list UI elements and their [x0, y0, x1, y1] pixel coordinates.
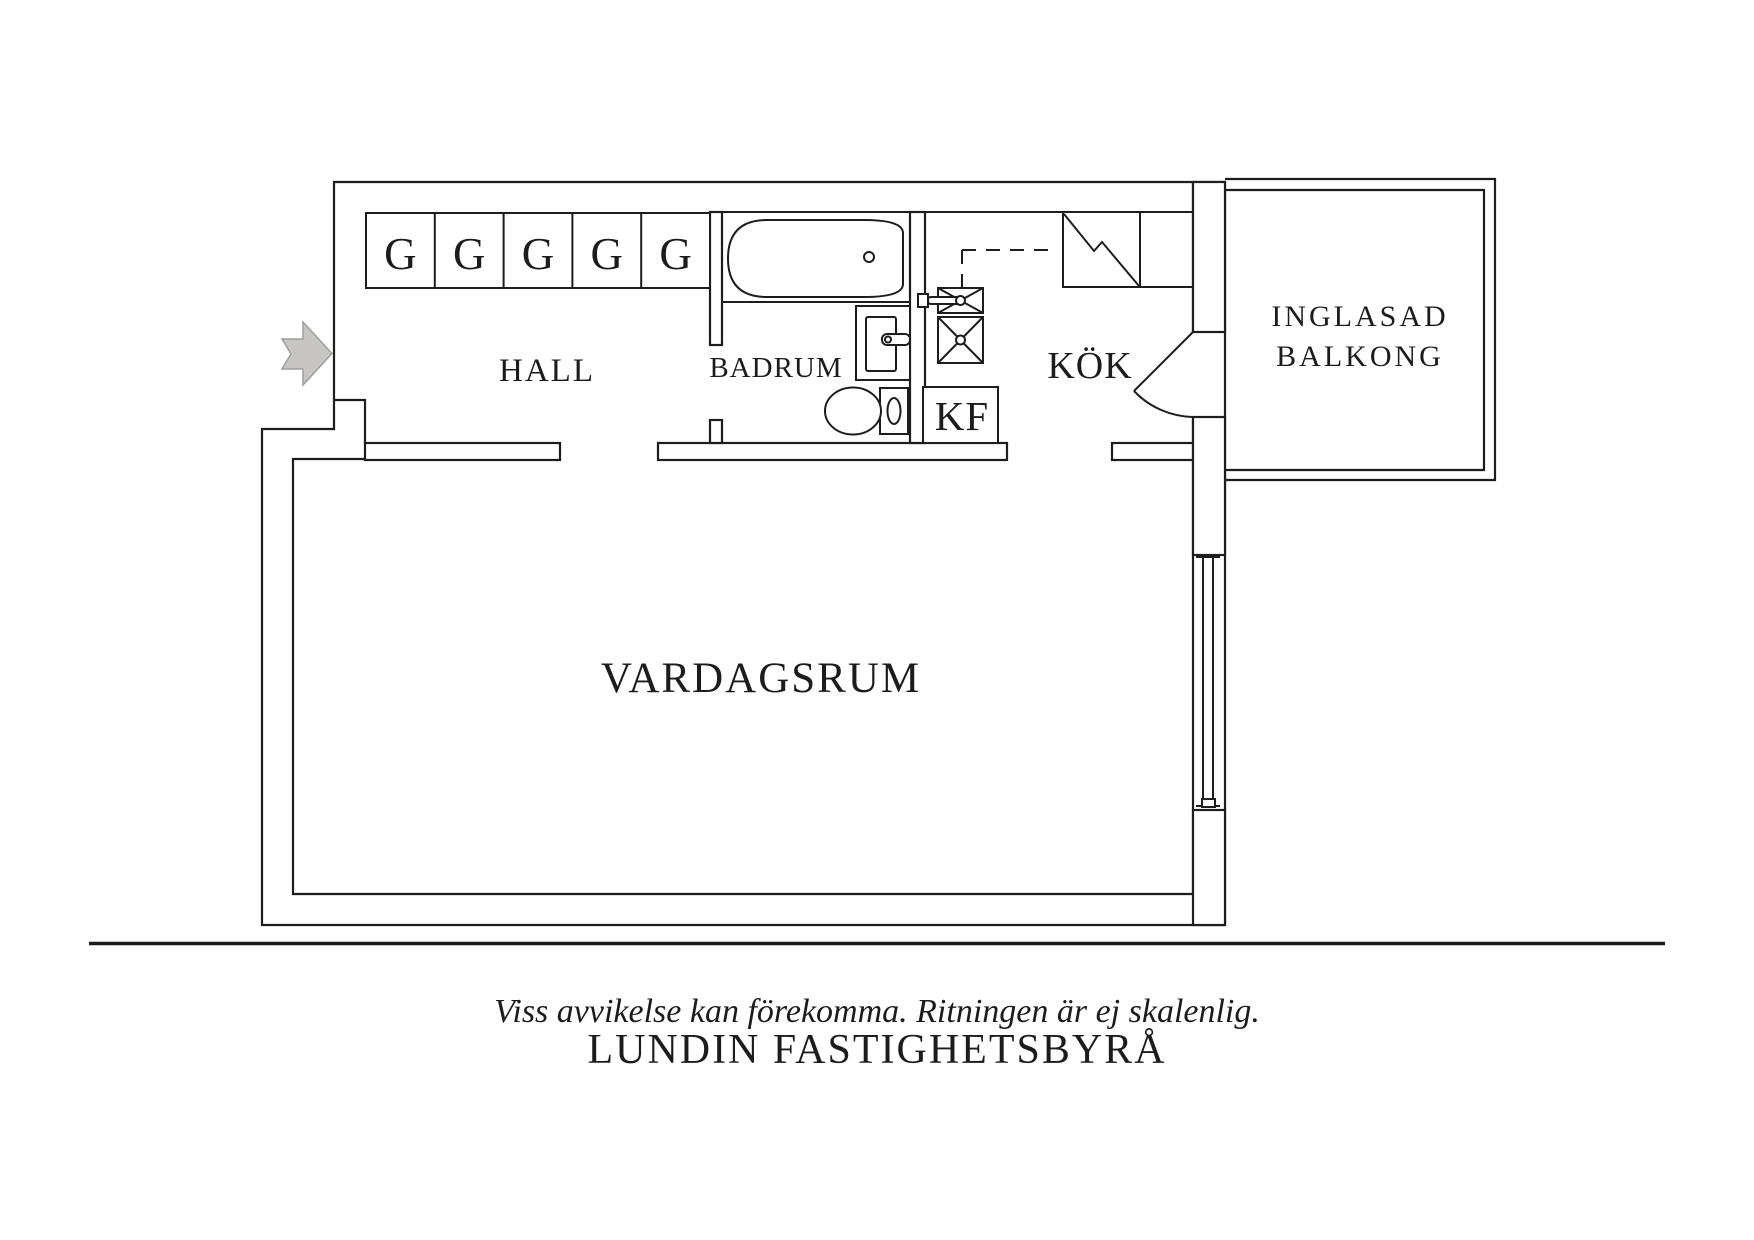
washbasin-faucet [882, 334, 910, 345]
closet-label: G [522, 229, 555, 279]
kitchen-sink-icon [918, 288, 983, 363]
room-label-kok: KÖK [1047, 345, 1132, 387]
badrum-fixtures [722, 212, 910, 435]
closet-label: G [384, 229, 417, 279]
east-wall-below-window [1193, 810, 1225, 925]
entrance-arrow-icon [282, 322, 332, 385]
kok-fixtures: KF [918, 212, 1193, 443]
floor-plan-drawing: G G G G G [0, 0, 1754, 1240]
floor-plan-page: G G G G G [0, 0, 1754, 1240]
room-label-vardagsrum: VARDAGSRUM [601, 655, 921, 702]
closet-label: G [659, 229, 692, 279]
bathtub-outline [728, 220, 903, 297]
window-icon [1193, 555, 1225, 810]
hall-bottom-wall [365, 443, 560, 460]
closet-label: G [453, 229, 486, 279]
badrum-door-stub-wall [710, 420, 722, 443]
closet-row: G G G G G [366, 213, 710, 288]
door-swing-arc [1134, 391, 1193, 417]
room-label-hall: HALL [499, 353, 595, 389]
badrum-bottom-wall [658, 443, 1007, 460]
entry-jog-wall [334, 400, 365, 443]
balcony-door-icon [1134, 332, 1193, 417]
outer-wall [262, 182, 1225, 925]
kf-label: KF [935, 393, 989, 439]
sink-b-drain [956, 336, 965, 345]
stove-box [1063, 212, 1140, 287]
kok-bottom-wall [1112, 443, 1193, 460]
washbasin-icon [856, 306, 910, 380]
room-label-badrum: BADRUM [709, 352, 842, 384]
window-sill-detail [1202, 799, 1215, 807]
stove-icon [1063, 212, 1193, 287]
apartment-walls [262, 182, 1225, 925]
sink-a-drain [956, 296, 965, 305]
bathtub-icon [728, 220, 903, 297]
sink-faucet-base [918, 294, 928, 307]
east-wall-above-door [1193, 182, 1225, 332]
fridge-freezer-icon: KF [923, 387, 998, 443]
door-leaf [1134, 332, 1193, 391]
footer-company: LUNDIN FASTIGHETSBYRÅ [587, 1027, 1166, 1073]
east-wall-between-door-window [1193, 417, 1225, 555]
toilet-icon [825, 388, 908, 435]
footer-disclaimer: Viss avvikelse kan förekomma. Ritningen … [494, 993, 1260, 1030]
closet-label: G [591, 229, 624, 279]
toilet-flush [888, 398, 901, 424]
room-label-balkong-line2: BALKONG [1276, 340, 1444, 373]
badrum-left-wall [710, 212, 722, 345]
footer: Viss avvikelse kan förekomma. Ritningen … [89, 944, 1665, 1074]
toilet-bowl [825, 388, 881, 435]
room-label-balkong-line1: INGLASAD [1271, 300, 1448, 333]
